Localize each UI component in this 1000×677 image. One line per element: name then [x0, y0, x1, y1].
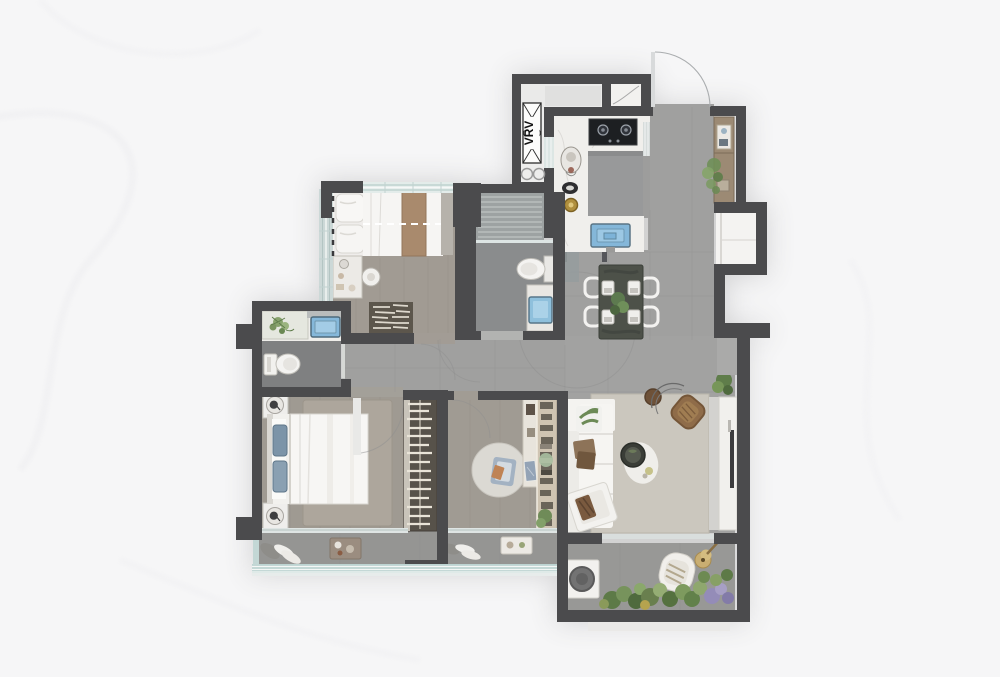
svg-text:VRV: VRV	[522, 121, 536, 145]
